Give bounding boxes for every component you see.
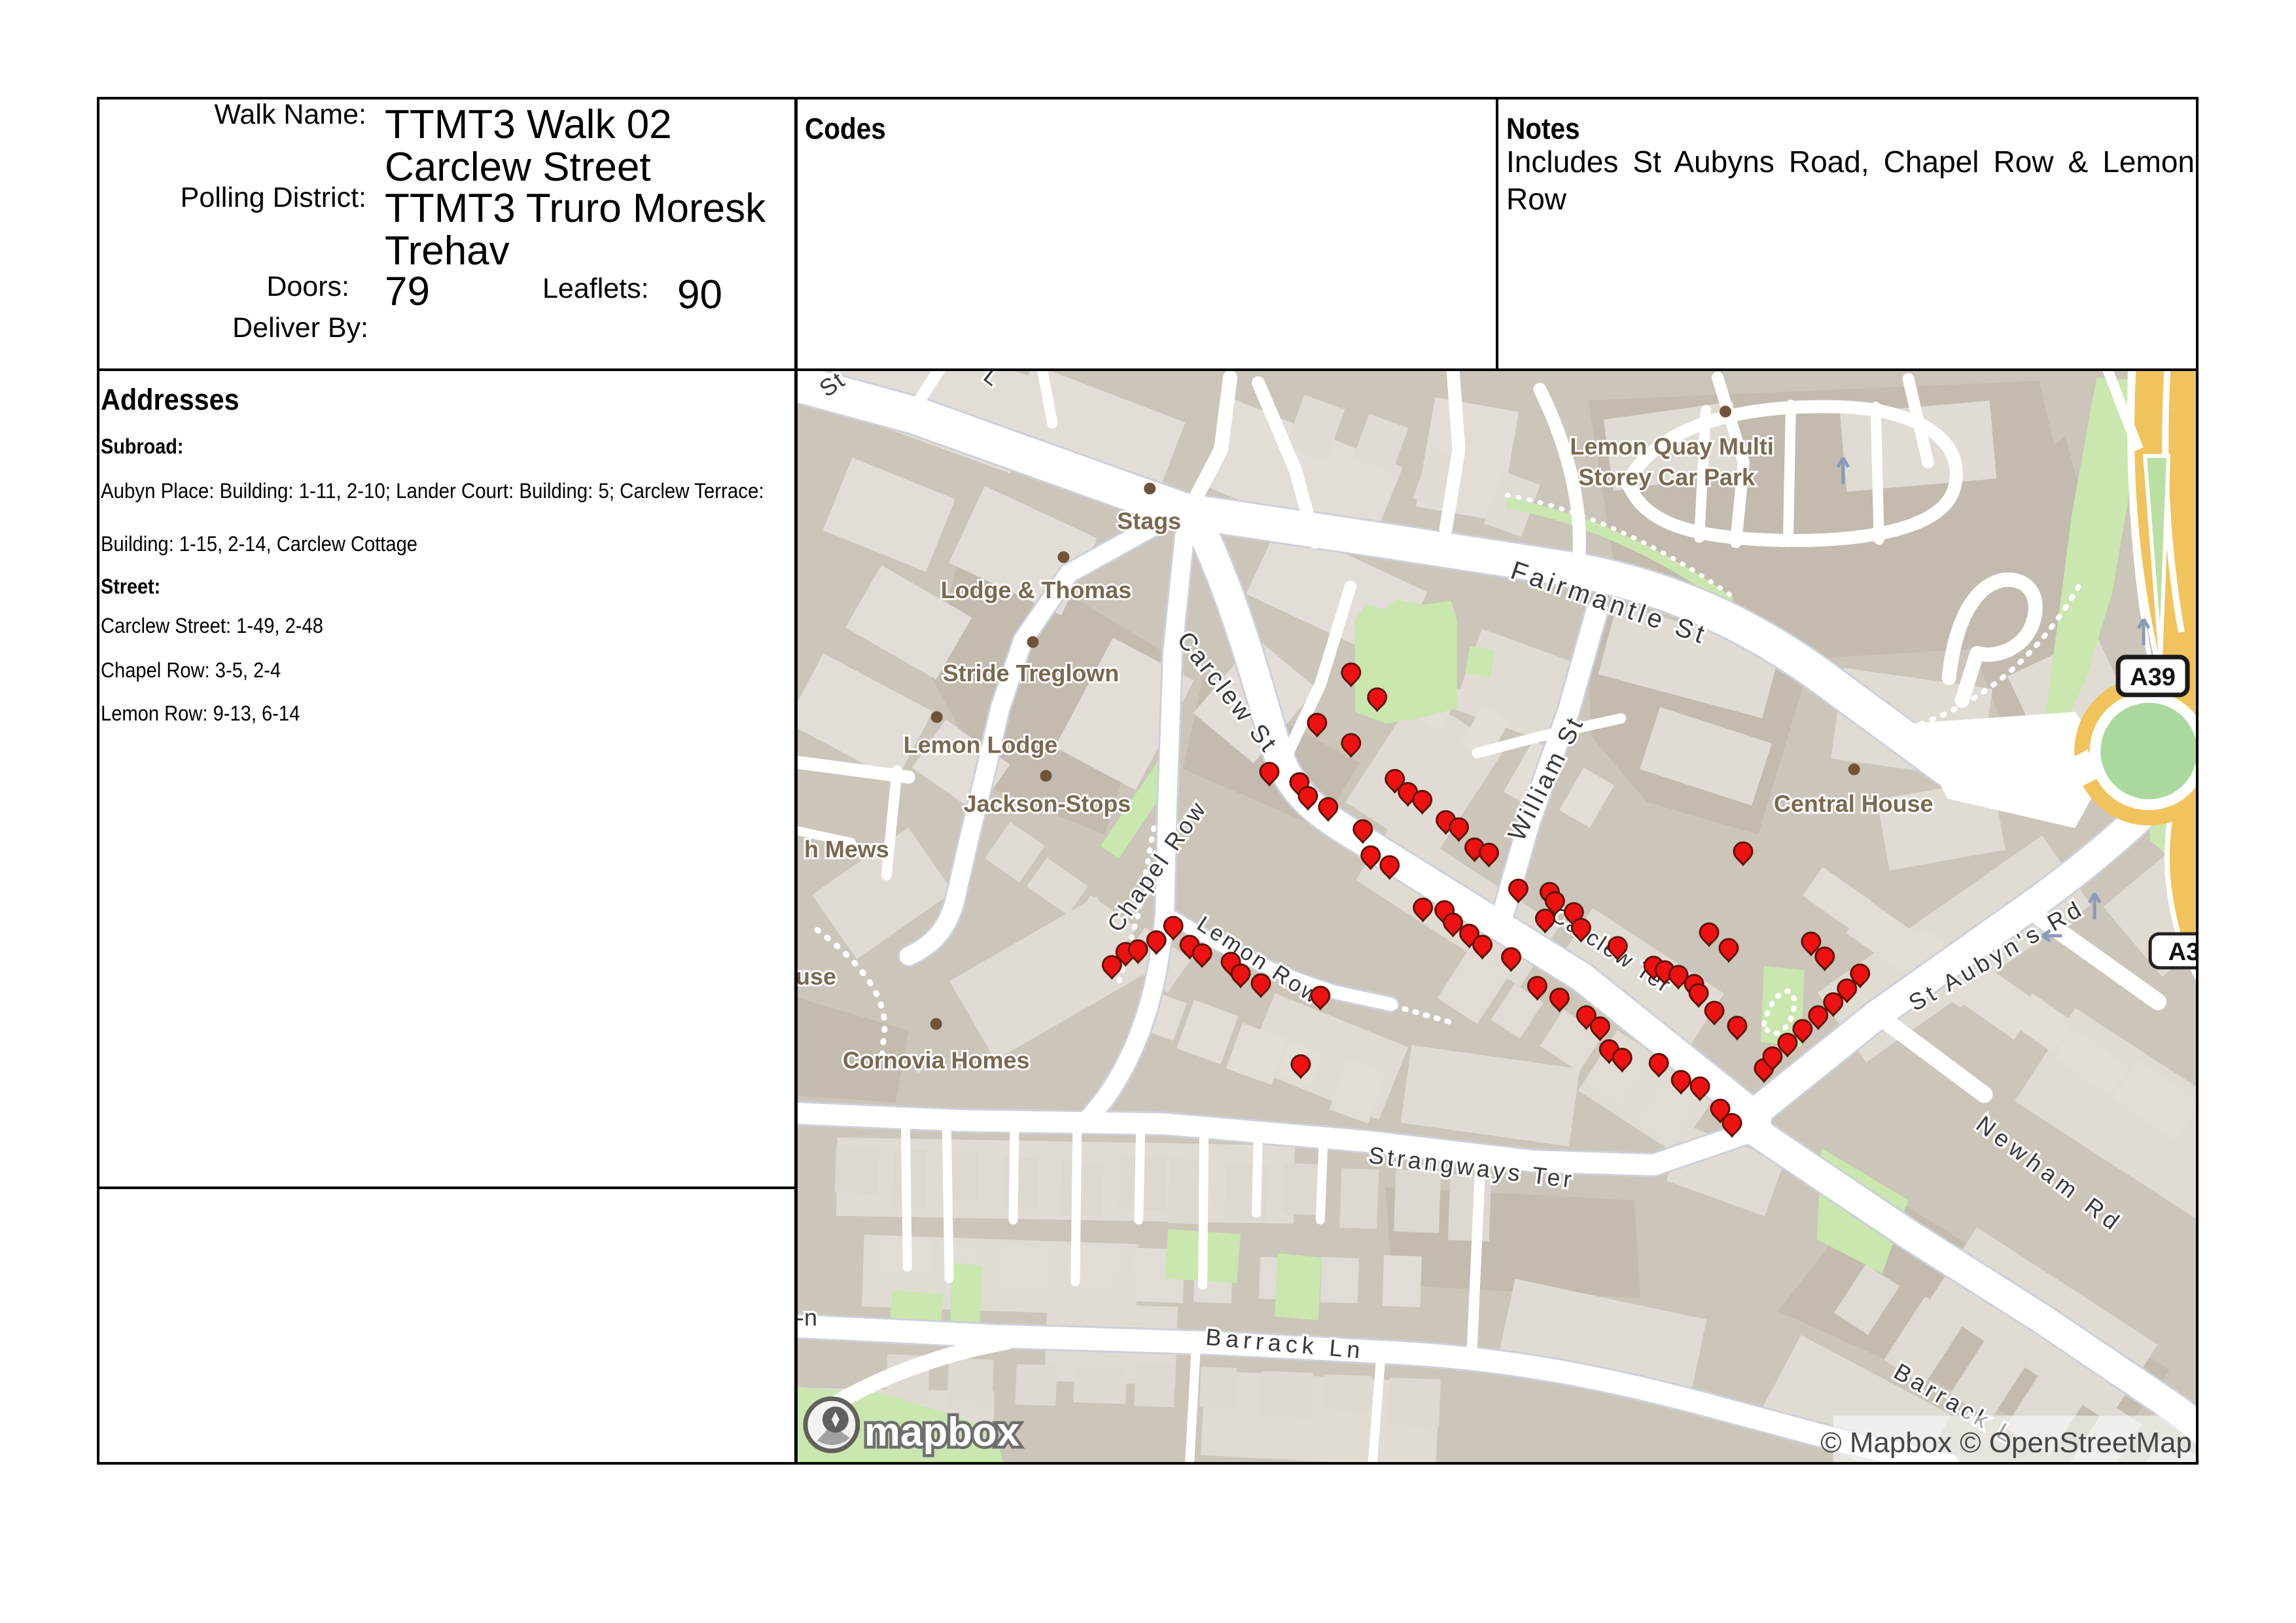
- svg-text:Storey Car Park: Storey Car Park: [1578, 464, 1756, 491]
- svg-text:Stride Treglown: Stride Treglown: [943, 660, 1120, 687]
- svg-text:Cornovia Homes: Cornovia Homes: [843, 1046, 1030, 1073]
- svg-text:© Mapbox © OpenStreetMap: © Mapbox © OpenStreetMap: [1820, 1427, 2192, 1459]
- svg-text:h Mews: h Mews: [804, 836, 889, 863]
- svg-text:use: use: [798, 963, 836, 990]
- svg-text:Lodge & Thomas: Lodge & Thomas: [941, 577, 1132, 603]
- svg-text:Stags: Stags: [1117, 507, 1181, 534]
- svg-text:Jackson-Stops: Jackson-Stops: [964, 790, 1131, 817]
- svg-text:-n: -n: [798, 1304, 817, 1331]
- svg-text:A39: A39: [2130, 664, 2176, 691]
- svg-text:Central House: Central House: [1774, 790, 1934, 817]
- svg-text:Lemon Quay Multi: Lemon Quay Multi: [1570, 433, 1773, 460]
- svg-text:A3: A3: [2168, 938, 2196, 966]
- svg-text:Lemon Lodge: Lemon Lodge: [904, 732, 1058, 758]
- svg-text:mapbox: mapbox: [864, 1410, 1019, 1455]
